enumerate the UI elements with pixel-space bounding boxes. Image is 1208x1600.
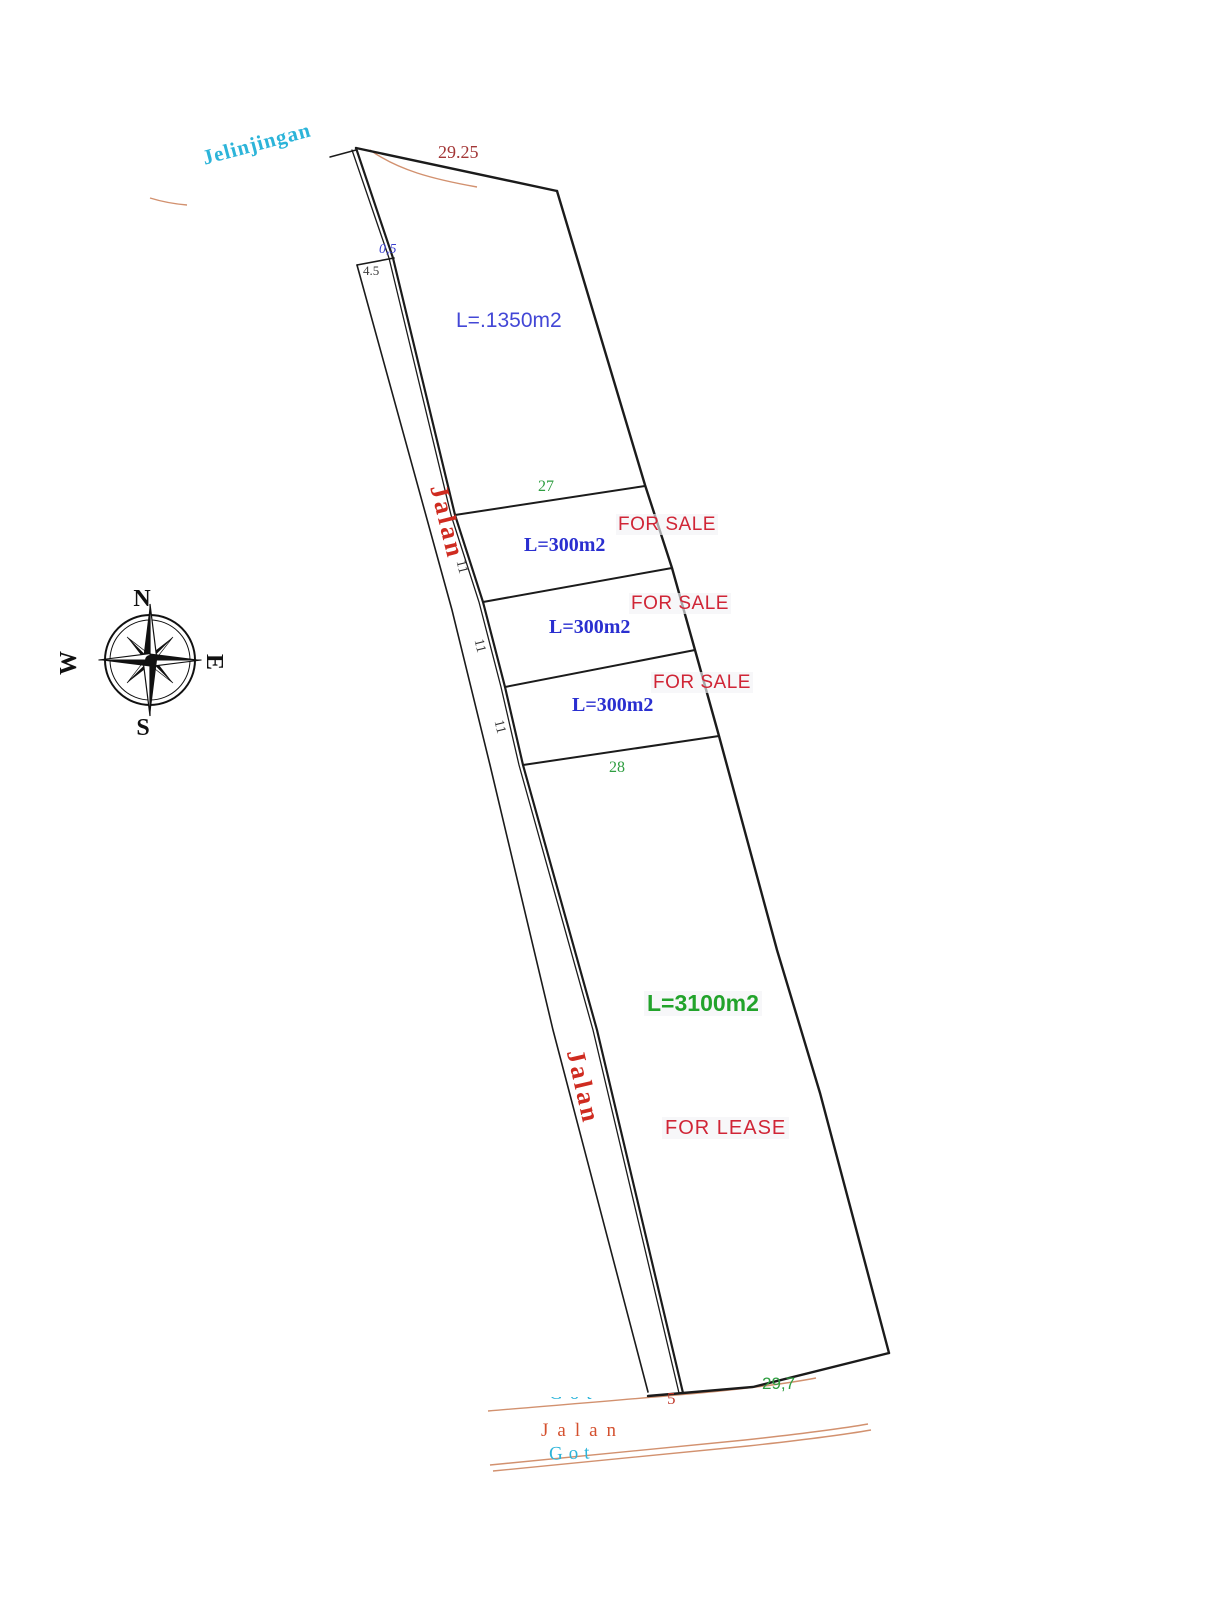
parcel-sale-3-status: FOR SALE <box>651 672 753 693</box>
land-survey-plan: N S W E Jelinjingan 29.25 0,5 4.5 L=.135… <box>0 0 1208 1600</box>
dim-south-boundary: 29,7 <box>762 1375 795 1392</box>
compass-south-label: S <box>136 715 149 741</box>
compass-east-label: E <box>201 654 227 670</box>
road-label-south: Jalan <box>541 1421 625 1440</box>
dim-south-offset: 5 <box>667 1390 676 1407</box>
contour-lines <box>150 150 871 1471</box>
west-boundary-double-line <box>352 150 679 1393</box>
compass-rose-icon: N S W E <box>56 586 227 741</box>
parcel-sale-1-status: FOR SALE <box>616 514 718 535</box>
dim-road-top-width: 4.5 <box>363 264 379 277</box>
road-west-edge <box>357 265 648 1392</box>
survey-linework: N S W E <box>0 0 1208 1600</box>
dim-sale-bottom-width: 28 <box>609 760 625 776</box>
dim-sale-top-width: 27 <box>538 479 554 495</box>
east-boundary-line <box>557 191 889 1353</box>
contour-top-left <box>150 198 187 205</box>
parcel-north-area: L=.1350m2 <box>456 310 562 331</box>
dim-north-boundary: 29.25 <box>438 143 479 161</box>
compass-west-label: W <box>56 651 82 675</box>
parcel-lease-status: FOR LEASE <box>662 1117 789 1139</box>
parcel-sale-2-status: FOR SALE <box>629 593 731 614</box>
parcel-lease-area: L=3100m2 <box>644 991 762 1016</box>
parcel-sale-3-area: L=300m2 <box>572 695 653 715</box>
parcel-sale-2-area: L=300m2 <box>549 617 630 637</box>
parcel-sale-1-area: L=300m2 <box>524 535 605 555</box>
ditch-label-partial: Got <box>549 1397 599 1408</box>
ditch-label-south: Got <box>549 1443 596 1464</box>
ditch-label-partial-text: Got <box>549 1397 599 1403</box>
west-boundary-line <box>356 148 683 1393</box>
compass-north-label: N <box>133 586 151 612</box>
dim-road-gap: 0,5 <box>379 243 397 257</box>
